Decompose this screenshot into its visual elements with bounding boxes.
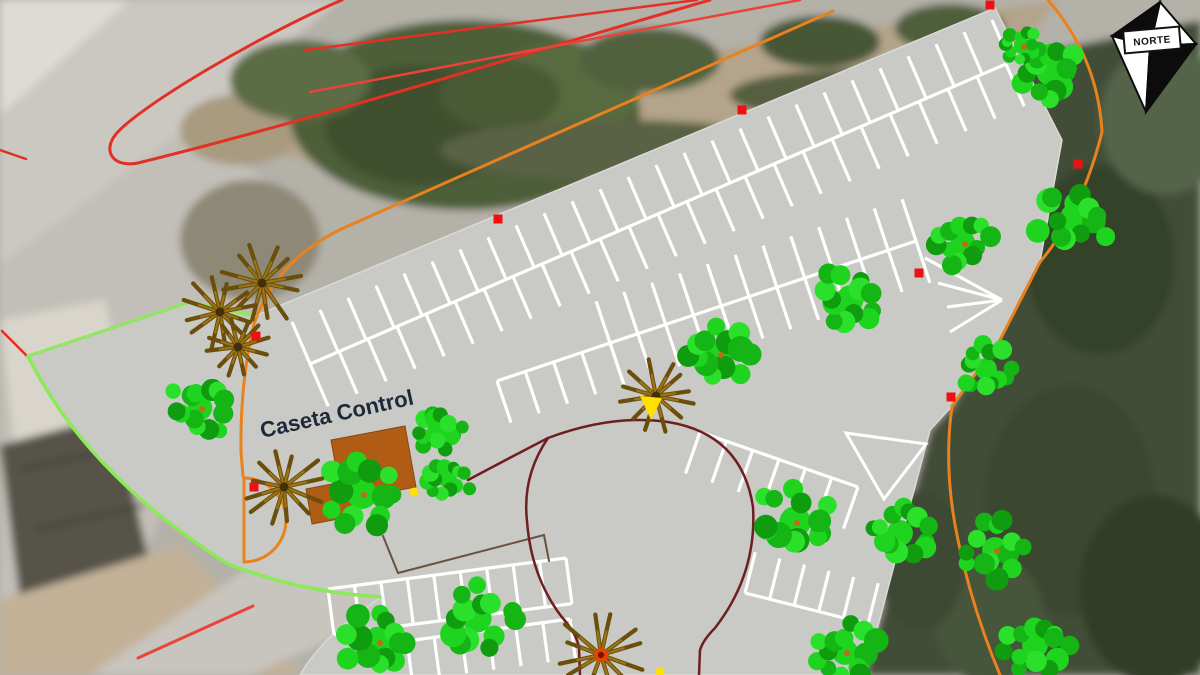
tree-leaf xyxy=(165,383,180,398)
aerial-canopy xyxy=(230,40,370,120)
tree-leaf xyxy=(1096,227,1115,246)
red-survey-marker xyxy=(250,483,259,492)
tree-leaf xyxy=(1047,42,1066,61)
tree-leaf xyxy=(412,426,425,439)
tree-leaf xyxy=(429,432,445,448)
tree-leaf xyxy=(1088,207,1106,225)
tree-speck xyxy=(844,650,850,656)
tree-leaf xyxy=(456,421,469,434)
tree-leaf xyxy=(457,466,470,479)
tree-leaf xyxy=(168,402,186,420)
tree-leaf xyxy=(389,632,410,653)
tree-speck xyxy=(994,548,1000,554)
red-survey-marker xyxy=(986,1,995,10)
red-survey-marker xyxy=(1074,160,1083,169)
tree-leaf xyxy=(1027,28,1039,40)
tree-leaf xyxy=(1015,539,1032,556)
tree-leaf xyxy=(864,628,889,653)
tree-leaf xyxy=(358,459,382,483)
tree-leaf xyxy=(1004,361,1020,377)
tree-leaf xyxy=(384,486,402,504)
aerial-shrub xyxy=(440,60,560,130)
tree-leaf xyxy=(765,490,783,508)
tree-leaf xyxy=(992,340,1012,360)
aerial-shrub xyxy=(760,16,880,68)
red-survey-marker xyxy=(738,106,747,115)
tree-leaf xyxy=(861,283,882,304)
tree-leaf xyxy=(480,639,498,657)
tree-leaf xyxy=(974,553,995,574)
red-survey-marker xyxy=(915,269,924,278)
tree-leaf xyxy=(1026,219,1050,243)
tree-leaf xyxy=(1003,28,1017,42)
tree-leaf xyxy=(463,482,476,495)
tree-leaf xyxy=(942,255,962,275)
tree-leaf xyxy=(959,545,975,561)
tree-leaf xyxy=(1012,649,1028,665)
tree-speck xyxy=(794,520,800,526)
tree-leaf xyxy=(995,643,1013,661)
tree-leaf xyxy=(366,514,388,536)
palm-center xyxy=(216,308,225,317)
tree-leaf xyxy=(1026,39,1038,51)
tree-leaf xyxy=(1044,628,1064,648)
tree-leaf xyxy=(337,648,359,670)
tree-leaf xyxy=(380,466,398,484)
tree-leaf xyxy=(872,519,888,535)
tree-leaf xyxy=(980,226,1001,247)
tree-leaf xyxy=(322,501,340,519)
tree-leaf xyxy=(1051,227,1071,247)
tree-speck xyxy=(377,640,383,646)
tree-leaf xyxy=(1025,651,1046,672)
palm-center-core xyxy=(598,652,604,658)
tree-leaf xyxy=(992,510,1013,531)
site-plan-map: Caseta Control NORTE xyxy=(0,0,1200,675)
tree-leaf xyxy=(826,313,843,330)
tree-leaf xyxy=(791,492,812,513)
tree-leaf xyxy=(480,593,501,614)
tree-leaf xyxy=(1031,83,1048,100)
tree-leaf xyxy=(968,530,986,548)
yellow-marker xyxy=(410,488,419,497)
tree-leaf xyxy=(754,515,778,539)
tree-leaf xyxy=(440,415,457,432)
tree-leaf xyxy=(919,517,938,536)
tree-leaf xyxy=(1042,187,1062,207)
tree-leaf xyxy=(1015,54,1025,64)
palm-center xyxy=(258,279,267,288)
tree-speck xyxy=(1021,44,1027,50)
tree-leaf xyxy=(468,576,486,594)
tree-leaf xyxy=(453,586,471,604)
aerial-scrub-patch xyxy=(180,180,320,300)
palm-center xyxy=(280,483,289,492)
tree-leaf xyxy=(346,604,370,628)
red-survey-marker xyxy=(252,332,261,341)
tree-leaf xyxy=(1057,58,1077,78)
tree-leaf xyxy=(830,265,850,285)
tree-leaf xyxy=(214,389,234,409)
tree-speck xyxy=(361,492,367,498)
tree-leaf xyxy=(958,375,975,392)
tree-leaf xyxy=(1048,212,1066,230)
tree-leaf xyxy=(728,336,754,362)
tree-leaf xyxy=(977,377,995,395)
tree-speck xyxy=(199,406,205,412)
tree-speck xyxy=(962,241,968,247)
tree-speck xyxy=(718,352,724,358)
red-survey-marker xyxy=(494,215,503,224)
palm-center xyxy=(234,343,243,352)
tree-leaf xyxy=(336,624,357,645)
tree-leaf xyxy=(808,509,831,532)
red-survey-marker xyxy=(947,393,956,402)
site-plan-screenshot: Caseta Control NORTE xyxy=(0,0,1200,675)
tree-leaf xyxy=(503,602,522,621)
